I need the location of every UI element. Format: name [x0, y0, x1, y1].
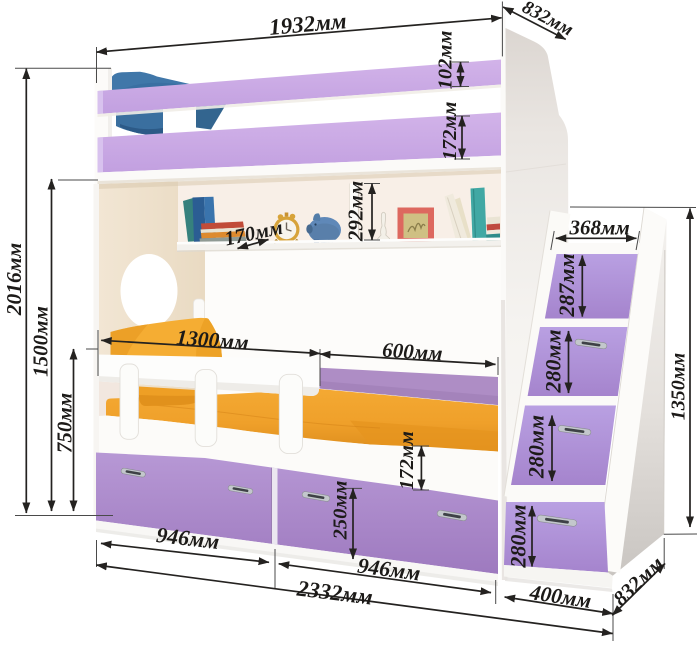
svg-text:280мм: 280мм — [523, 415, 548, 479]
svg-text:102мм: 102мм — [435, 31, 457, 90]
svg-text:600мм: 600мм — [382, 338, 444, 366]
svg-text:287мм: 287мм — [554, 253, 579, 317]
svg-text:280мм: 280мм — [541, 329, 566, 393]
svg-text:292мм: 292мм — [343, 181, 367, 242]
svg-text:750мм: 750мм — [52, 393, 76, 453]
svg-text:172мм: 172мм — [396, 431, 418, 490]
svg-text:368мм: 368мм — [568, 216, 629, 240]
svg-text:1350мм: 1350мм — [668, 353, 690, 421]
svg-text:1500мм: 1500мм — [28, 306, 52, 377]
svg-text:280мм: 280мм — [506, 504, 531, 568]
svg-text:250мм: 250мм — [330, 481, 352, 541]
svg-text:172мм: 172мм — [439, 102, 461, 161]
svg-text:2016мм: 2016мм — [2, 243, 26, 317]
